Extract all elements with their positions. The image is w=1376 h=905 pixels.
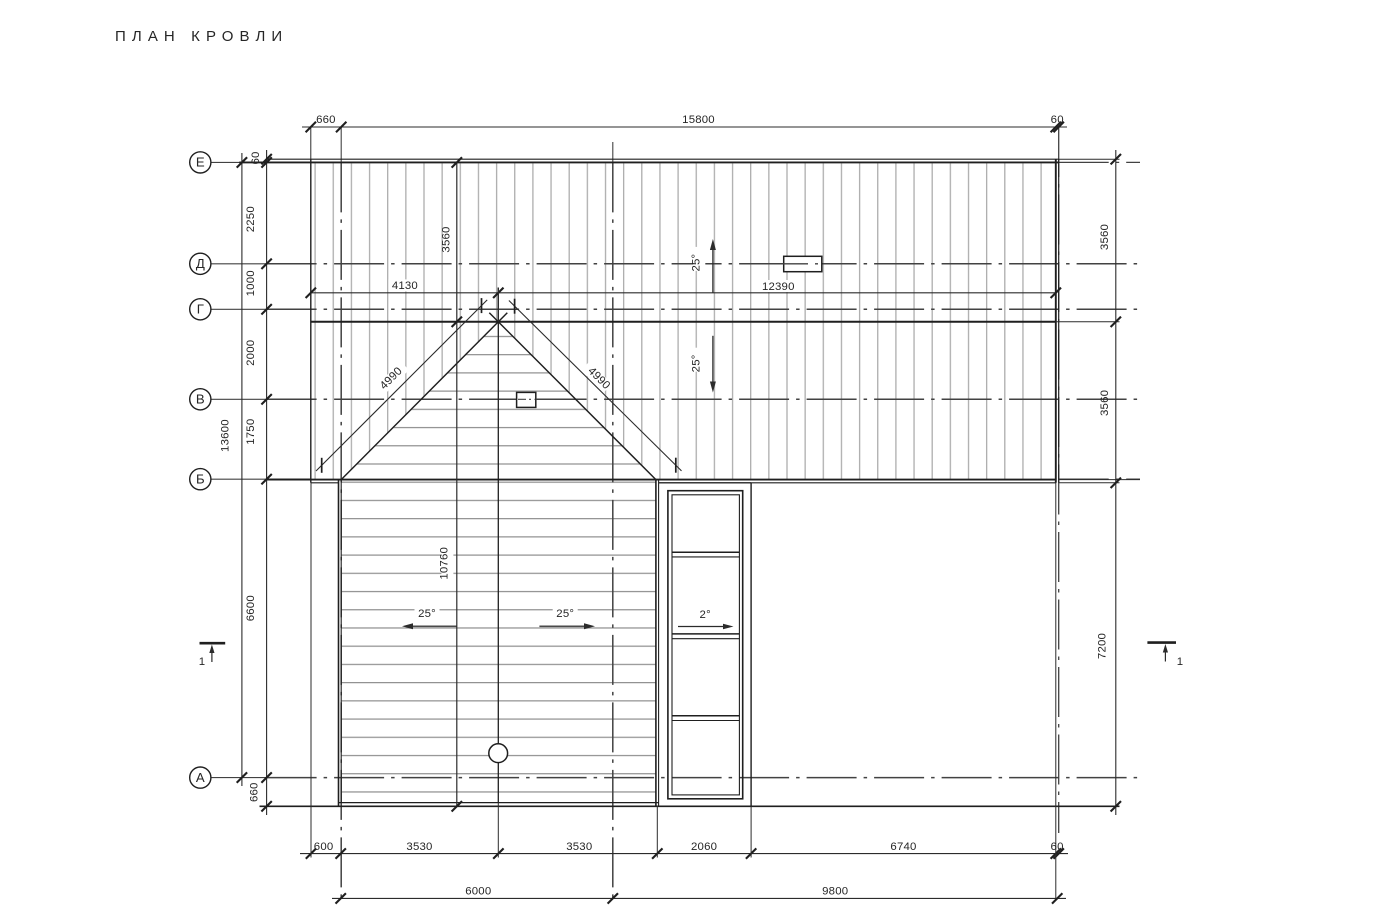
svg-text:60: 60 [1051, 114, 1064, 126]
svg-text:6740: 6740 [890, 841, 916, 853]
svg-text:3530: 3530 [406, 841, 432, 853]
svg-text:ПЛАН КРОВЛИ: ПЛАН КРОВЛИ [115, 28, 288, 45]
svg-text:А: А [196, 770, 205, 785]
svg-text:25°: 25° [690, 254, 702, 272]
svg-text:В: В [196, 392, 205, 407]
svg-text:12390: 12390 [762, 281, 795, 293]
svg-text:4130: 4130 [392, 280, 418, 292]
svg-text:6600: 6600 [245, 595, 257, 621]
svg-text:60: 60 [1051, 841, 1064, 853]
svg-text:3530: 3530 [566, 841, 592, 853]
svg-text:Д: Д [196, 256, 205, 271]
svg-text:600: 600 [314, 841, 334, 853]
svg-text:3560: 3560 [441, 226, 453, 252]
svg-text:Б: Б [196, 472, 205, 487]
svg-text:15800: 15800 [682, 114, 715, 126]
svg-text:Г: Г [197, 302, 204, 317]
svg-text:6000: 6000 [465, 885, 491, 897]
svg-text:2°: 2° [700, 609, 711, 621]
svg-text:2000: 2000 [245, 340, 257, 366]
svg-text:10760: 10760 [438, 547, 450, 580]
svg-text:660: 660 [248, 782, 260, 802]
svg-text:9800: 9800 [822, 885, 848, 897]
svg-text:3560: 3560 [1099, 224, 1111, 250]
svg-text:25°: 25° [418, 608, 436, 620]
svg-text:25°: 25° [690, 354, 702, 372]
svg-text:Е: Е [196, 155, 205, 170]
svg-text:13600: 13600 [220, 419, 232, 452]
svg-text:2060: 2060 [691, 841, 717, 853]
svg-text:660: 660 [316, 114, 336, 126]
svg-text:25°: 25° [556, 608, 574, 620]
svg-text:60: 60 [250, 151, 262, 164]
svg-text:1: 1 [199, 656, 206, 668]
svg-text:2250: 2250 [245, 206, 257, 232]
svg-text:1750: 1750 [245, 419, 257, 445]
svg-text:3560: 3560 [1099, 390, 1111, 416]
svg-text:7200: 7200 [1097, 633, 1109, 659]
svg-text:1: 1 [1177, 656, 1184, 668]
svg-text:1000: 1000 [245, 270, 257, 296]
